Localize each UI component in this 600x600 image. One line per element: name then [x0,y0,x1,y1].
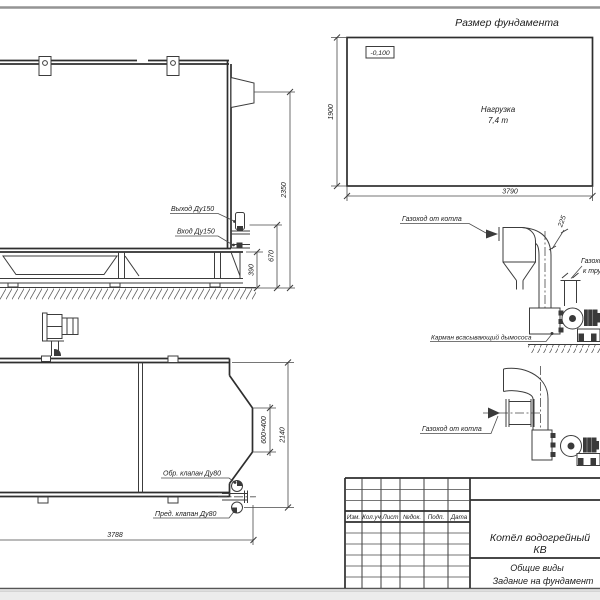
product-name-line1: Котёл водогрейный [490,532,590,544]
duct-dimension: 225 [549,215,568,250]
drawing-canvas: 2350 670 390 Выход Ду150 Вход Ду150 Разм… [0,0,600,600]
elevation-mark: -0,100 [370,50,389,57]
side-view-labels: Выход Ду150 Вход Ду150 [170,205,236,246]
from-boiler-label: Газоход от котла [422,425,482,433]
dim-plan-length: 3788 [107,532,123,539]
boiler-side-view: 2350 670 390 Выход Ду150 Вход Ду150 [0,57,295,300]
to-stack-line1: Газоход [581,257,600,265]
check-valve-label: Обр. клапан Ду80 [163,470,221,478]
flow-arrow [486,230,498,239]
boiler-plan-view: Обр. клапан Ду80 Пред. клапан Ду80 3788 … [0,313,294,545]
outlet-pipe [231,213,250,235]
load-label-2: 7,4 т [488,116,508,125]
foundation-plan: Размер фундамента -0,100 Нагрузка 7,4 т … [328,17,596,201]
doc-type-line2: Задание на фундамент [493,576,594,586]
doc-type-line1: Общие виды [510,563,564,573]
foundation-outline [347,38,593,187]
inlet-label: Вход Ду150 [177,228,215,236]
foundation-title: Размер фундамента [455,17,559,29]
col-podp: Подп. [428,514,444,521]
col-izm: Изм. [347,514,360,521]
pocket-label: Карман всасывающий дымососа [431,334,532,342]
dim-outlet-height: 670 [269,250,276,262]
suction-pocket [530,308,564,334]
dim-duct-225: 225 [557,215,568,229]
plan-view-dimensions: 3788 2140 600×400 [0,360,294,546]
dim-inlet-height: 390 [249,264,256,276]
dim-flue-section: 600×400 [261,416,268,444]
to-stack-line2: к трубе [583,267,600,275]
burner-assembly [42,313,79,362]
check-valve [232,481,243,492]
title-block: Изм. Кол.уч Лист №док. Подп. Дата Котёл … [345,478,600,588]
flue-diagram-cyclone: Газоход от котла 225 [400,215,600,353]
dim-plan-width: 2140 [280,427,287,444]
from-boiler-label: Газоход от котла [402,215,462,223]
base-frame [0,252,243,287]
col-data: Дата [450,514,468,521]
col-ndok: №док. [403,514,421,521]
flue-diagram-simple: Газоход от котла [420,366,600,466]
dim-total-height: 2350 [281,182,288,199]
side-view-dimensions: 2350 670 390 [245,89,295,291]
lifting-lug [167,57,179,76]
ground-hatch [528,345,600,354]
smoke-exhauster [561,273,600,342]
title-block-headers: Изм. Кол.уч Лист №док. Подп. Дата [347,514,468,521]
col-koluch: Кол.уч [362,514,381,521]
smoke-exhauster [532,430,600,466]
product-name-line2: КВ [533,544,546,556]
ground-hatch [0,288,256,300]
dim-foundation-length: 3790 [502,189,518,196]
flow-arrow [488,408,500,419]
outlet-label: Выход Ду150 [171,205,214,213]
cyclone [503,228,536,290]
dim-foundation-width: 1900 [328,104,335,120]
drawing-sheet: 2350 670 390 Выход Ду150 Вход Ду150 Разм… [0,0,600,600]
flue-outlet-stub [231,78,254,108]
lifting-lug [39,57,51,76]
col-list: Лист [382,514,399,521]
safety-valve-label: Пред. клапан Ду80 [155,510,217,518]
load-label-1: Нагрузка [481,105,516,114]
